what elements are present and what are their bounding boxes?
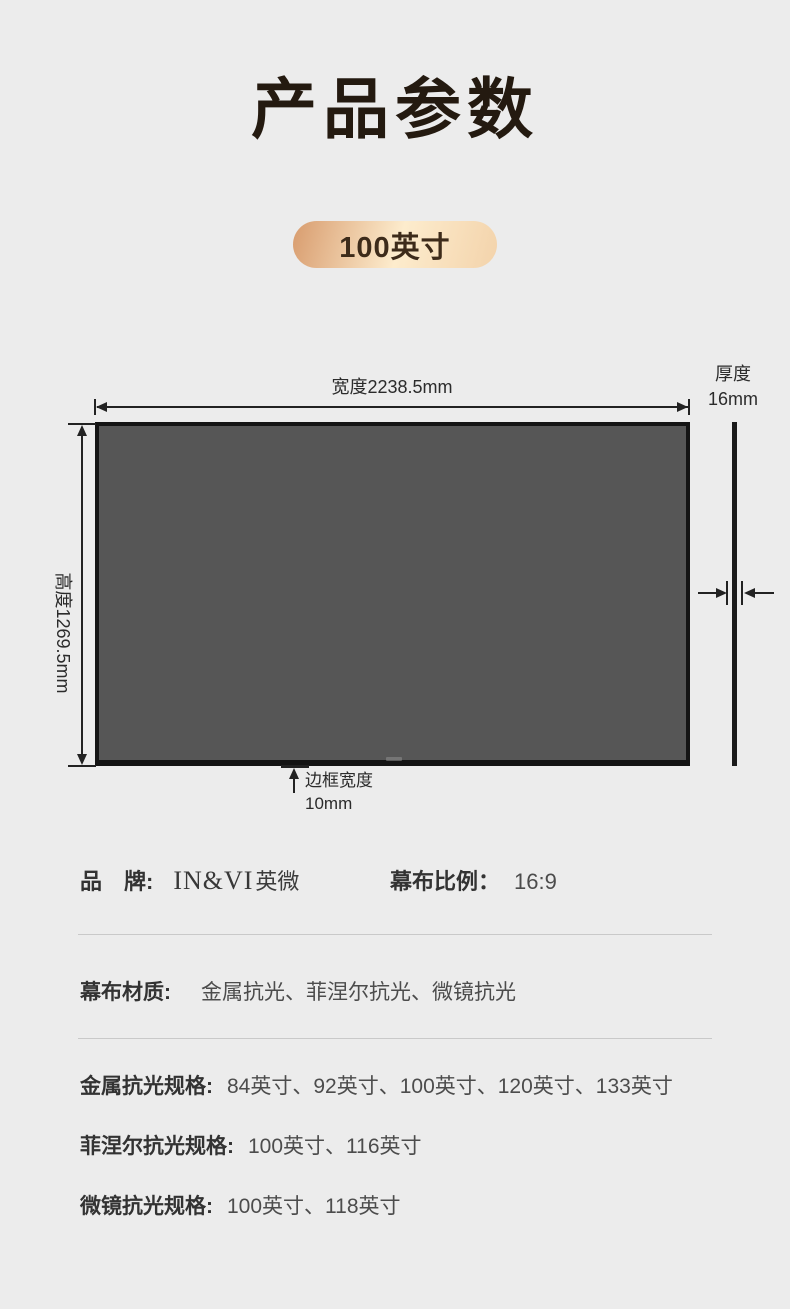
border-width-value: 10mm (305, 792, 373, 815)
screen-front-view (95, 422, 690, 766)
page-title: 产品参数 (0, 70, 790, 149)
thickness-tick-right (741, 581, 743, 605)
divider (78, 1038, 712, 1039)
border-width-note: 边框宽度 10mm (305, 769, 373, 815)
screen-watermark-mark (386, 757, 402, 761)
thickness-value: 16mm (708, 387, 758, 412)
spec-label: 微镜抗光规格: (80, 1190, 213, 1220)
border-width-label: 边框宽度 (305, 769, 373, 792)
width-dimension-label: 宽度2238.5mm (331, 373, 452, 399)
thickness-arrow-line-left (698, 592, 718, 594)
arrow-up-icon (77, 425, 87, 436)
height-dim-tick-bottom (68, 765, 96, 767)
spec-label: 金属抗光规格: (80, 1070, 213, 1100)
arrow-left-icon (96, 402, 107, 412)
height-dim-line (81, 427, 83, 763)
screen-side-view (732, 422, 737, 766)
spec-label: 菲涅尔抗光规格: (80, 1130, 234, 1160)
arrow-up-icon (289, 768, 299, 779)
aspect-ratio-label: 幕布比例： (390, 864, 500, 896)
thickness-dimension-label: 厚度 16mm (708, 362, 758, 412)
width-dim-line (97, 406, 688, 408)
brand-label: 品 牌: (80, 864, 153, 896)
spec-row-micromirror: 微镜抗光规格: 100英寸、118英寸 (80, 1190, 401, 1220)
spec-value: 84英寸、92英寸、100英寸、120英寸、133英寸 (227, 1070, 673, 1100)
aspect-ratio-row: 幕布比例： 16:9 (390, 864, 557, 896)
material-label: 幕布材质: (80, 976, 171, 1006)
spec-value: 100英寸、118英寸 (227, 1190, 401, 1220)
brand-name-en: IN&VI (173, 866, 253, 896)
width-dim-tick-right (688, 399, 690, 415)
brand-row: 品 牌: IN&VI 英微 (80, 864, 299, 896)
spec-row-fresnel: 菲涅尔抗光规格: 100英寸、116英寸 (80, 1130, 422, 1160)
brand-name-cn: 英微 (255, 864, 299, 896)
size-badge-label: 100英寸 (339, 224, 450, 266)
aspect-ratio-value: 16:9 (514, 869, 557, 895)
material-row: 幕布材质: 金属抗光、菲涅尔抗光、微镜抗光 (80, 976, 516, 1006)
divider (78, 934, 712, 935)
thickness-tick-left (726, 581, 728, 605)
size-badge: 100英寸 (293, 221, 497, 268)
product-parameters-page: 产品参数 100英寸 宽度2238.5mm 高度1269.5mm 边框宽度 10… (0, 0, 790, 1309)
thickness-arrow-line-right (754, 592, 774, 594)
thickness-label: 厚度 (708, 362, 758, 387)
spec-row-metal: 金属抗光规格: 84英寸、92英寸、100英寸、120英寸、133英寸 (80, 1070, 673, 1100)
height-dimension-label: 高度1269.5mm (51, 572, 77, 693)
arrow-down-icon (77, 754, 87, 765)
material-value: 金属抗光、菲涅尔抗光、微镜抗光 (201, 976, 516, 1006)
arrow-right-icon (677, 402, 688, 412)
spec-value: 100英寸、116英寸 (248, 1130, 422, 1160)
